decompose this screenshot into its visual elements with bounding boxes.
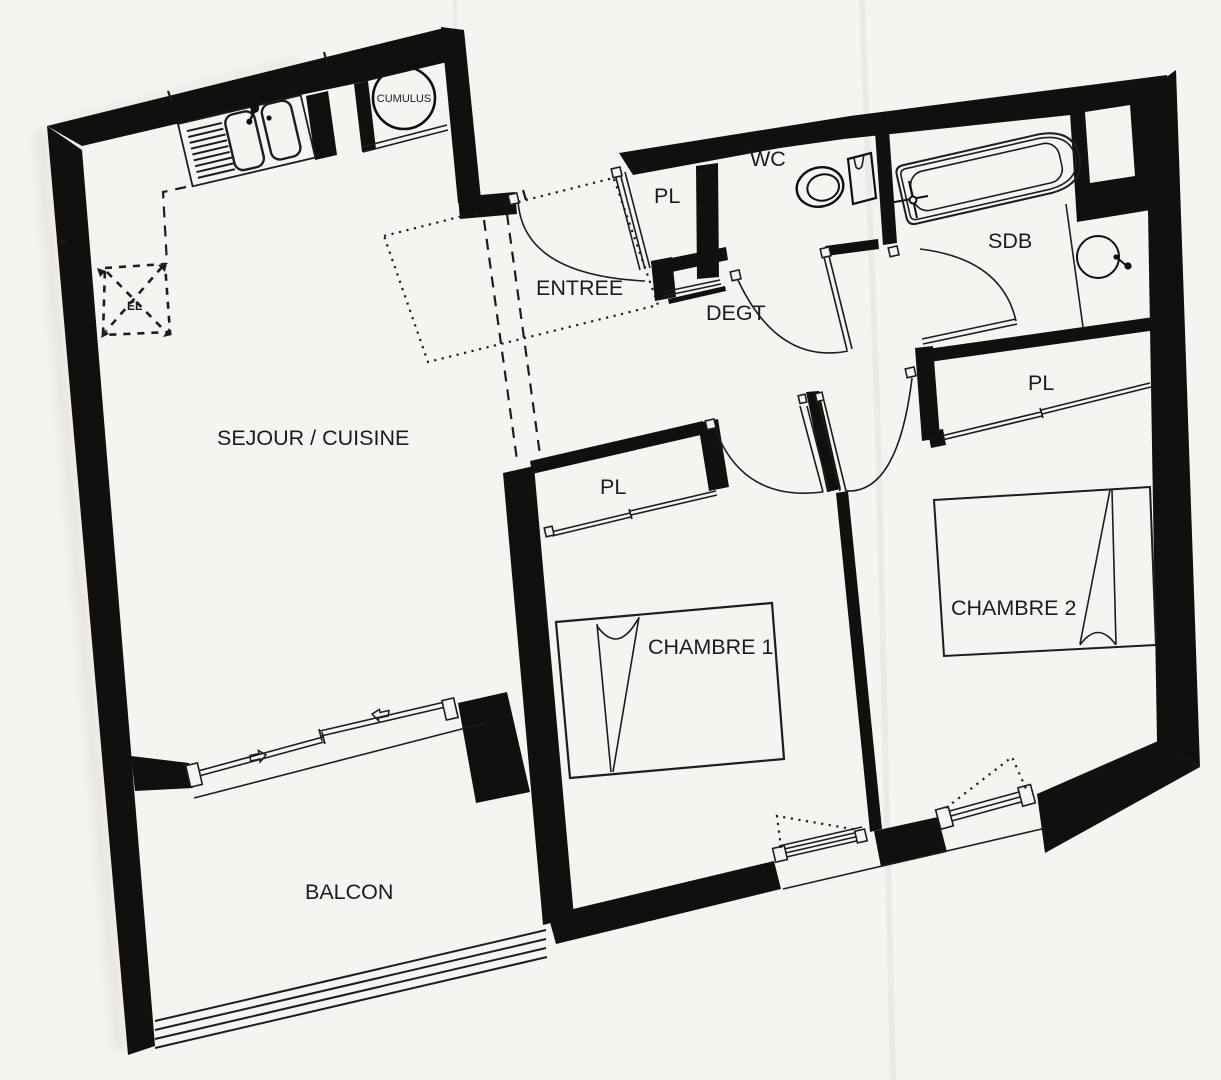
svg-text:BALCON: BALCON: [305, 880, 393, 904]
svg-text:PL: PL: [654, 184, 680, 208]
svg-text:PL: PL: [1028, 371, 1054, 395]
svg-text:CHAMBRE 2: CHAMBRE 2: [951, 596, 1076, 620]
svg-text:CHAMBRE 1: CHAMBRE 1: [648, 635, 773, 659]
svg-text:WC: WC: [750, 147, 786, 171]
svg-text:ENTREE: ENTREE: [536, 276, 623, 300]
svg-text:CUMULUS: CUMULUS: [377, 93, 431, 105]
svg-text:DEGT: DEGT: [706, 301, 766, 325]
svg-text:PL: PL: [600, 475, 626, 499]
svg-text:SDB: SDB: [988, 229, 1032, 253]
svg-text:SEJOUR / CUISINE: SEJOUR / CUISINE: [217, 426, 409, 450]
svg-text:EL: EL: [127, 299, 142, 313]
